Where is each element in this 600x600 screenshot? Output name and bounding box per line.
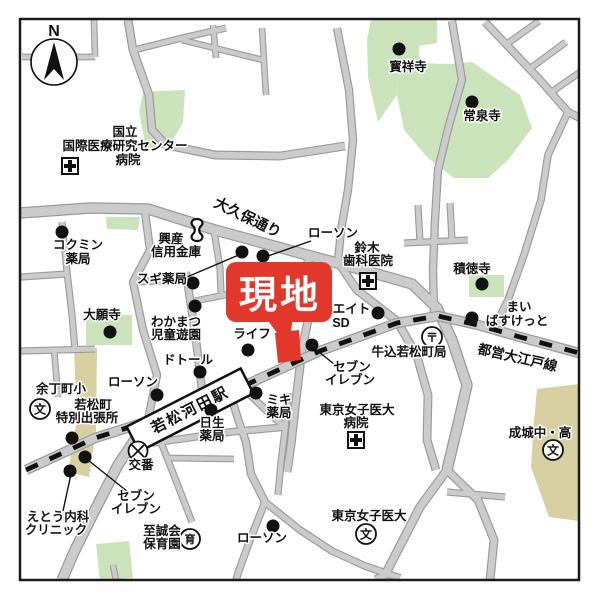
area-map: 若松河田駅	[0, 0, 600, 600]
poi-dot-eto-clinic	[64, 465, 77, 478]
label-seven-center: セブン	[333, 359, 371, 374]
label-miki-2: 薬局	[265, 405, 291, 420]
poi-dot-lawson-north	[257, 250, 270, 263]
map-canvas: 若松河田駅	[0, 0, 600, 600]
label-seven-southwest: セブン	[117, 488, 155, 503]
label-kokumin-2: 薬局	[64, 251, 90, 266]
label-hoshoji: 寳祥寺	[388, 59, 427, 74]
poi-dot-daiganji	[104, 326, 117, 339]
label-seijo: 成城中・高	[509, 425, 572, 440]
svg-text:育: 育	[185, 532, 196, 546]
label-twmu-hospital-2: 病院	[343, 415, 369, 430]
label-daiganji: 大願寺	[83, 307, 121, 322]
label-shiseikai-2: 保育園	[142, 536, 181, 551]
poi-dot-sekitokuji	[476, 278, 489, 291]
svg-text:文: 文	[34, 402, 47, 417]
poi-dot-josenji	[466, 96, 479, 109]
label-branch-office-2: 特別出張所	[56, 410, 119, 425]
label-suzuki-dental: 鈴木	[354, 240, 380, 255]
label-lawson-west: ローソン	[108, 375, 158, 389]
poi-dot-block-north	[187, 277, 200, 290]
label-eto-clinic: えとう内科	[27, 509, 90, 524]
hospital-cross-icon	[62, 158, 78, 174]
poi-dot-seven-center	[306, 339, 319, 352]
label-kosan-shinkin-2: 信用金庫	[151, 244, 202, 259]
svg-text:文: 文	[547, 443, 560, 458]
label-twmu-hospital: 東京女子医大	[319, 402, 395, 417]
school-icon-twmu: 文	[356, 524, 376, 544]
site-callout-label: 現地	[239, 275, 321, 317]
label-nissei-2: 薬局	[198, 428, 224, 443]
poi-dot-kokumin	[56, 226, 69, 239]
poi-dot-create-sd	[372, 307, 385, 320]
label-seven-center-2: イレブン	[325, 372, 375, 387]
label-sugi: スギ薬局	[137, 271, 187, 286]
nursery-icon: 育	[180, 529, 200, 549]
label-kokumin: コクミン	[53, 238, 103, 252]
label-my-basket: まい	[506, 300, 531, 314]
park-strip-okubo	[106, 217, 140, 230]
label-yochomachi: 余丁町小	[35, 381, 87, 396]
dental-cross-icon	[360, 273, 376, 289]
label-ushigome-post: 牛込若松町局	[371, 344, 446, 359]
label-twmu: 東京女子医大	[331, 508, 407, 523]
compass: N	[31, 23, 77, 85]
school-icon-seijo: 文	[543, 440, 563, 460]
poi-dot-lawson-west	[151, 389, 164, 402]
label-nimc-hospital-2: 国際医療研究センター	[62, 138, 187, 153]
label-koban: 交番	[128, 457, 154, 472]
label-lawson-north: ローソン	[308, 226, 358, 240]
label-doutor: ドトール	[163, 353, 214, 367]
poi-dot-life	[242, 344, 255, 357]
label-josenji: 常泉寺	[463, 108, 501, 123]
label-lawson-south: ローソン	[237, 531, 287, 545]
label-branch-office: 若松町	[73, 397, 112, 412]
compass-north-label: N	[48, 23, 60, 40]
label-life: ライフ	[233, 327, 271, 341]
label-miki: ミキ	[266, 393, 291, 407]
label-nimc-hospital: 国立	[112, 124, 138, 139]
label-nissei: 日生	[199, 415, 225, 430]
poi-dot-nissei	[205, 404, 218, 417]
label-seven-southwest-2: イレブン	[111, 501, 161, 516]
post-office-icon: 〒	[422, 327, 442, 347]
label-eto-clinic-2: クリニック	[25, 523, 88, 537]
poi-dot-seven-southwest	[79, 451, 92, 464]
poi-dot-hoshoji	[393, 43, 406, 56]
poi-dot-branch-office	[66, 432, 79, 445]
label-shiseikai: 至誠会	[143, 523, 181, 538]
label-suzuki-dental-2: 歯科医院	[343, 253, 394, 268]
label-wakamatsu-park-2: 児童遊園	[150, 327, 201, 342]
poi-dot-sugi	[236, 246, 249, 259]
school-icon-yochomachi: 文	[30, 399, 50, 419]
label-create-sd-2: SD	[332, 316, 349, 330]
label-wakamatsu-park: わかまつ	[151, 315, 201, 329]
poi-dot-my-basket	[466, 312, 479, 325]
poi-dot-miki	[250, 387, 263, 400]
label-nimc-hospital-3: 病院	[115, 152, 141, 167]
leader-eto-clinic	[63, 474, 71, 511]
label-my-basket-2: ばすけっと	[486, 313, 549, 328]
poi-dot-doutor	[194, 366, 207, 379]
hospital-cross-icon-twmu	[348, 432, 364, 448]
label-sekitokuji: 積徳寺	[452, 261, 491, 276]
svg-text:〒: 〒	[426, 331, 438, 345]
label-kosan-shinkin: 興産	[158, 231, 183, 246]
svg-text:文: 文	[360, 527, 373, 542]
map-content: 若松河田駅	[20, 19, 592, 581]
poi-dot-wakamatsu-park	[189, 300, 202, 313]
